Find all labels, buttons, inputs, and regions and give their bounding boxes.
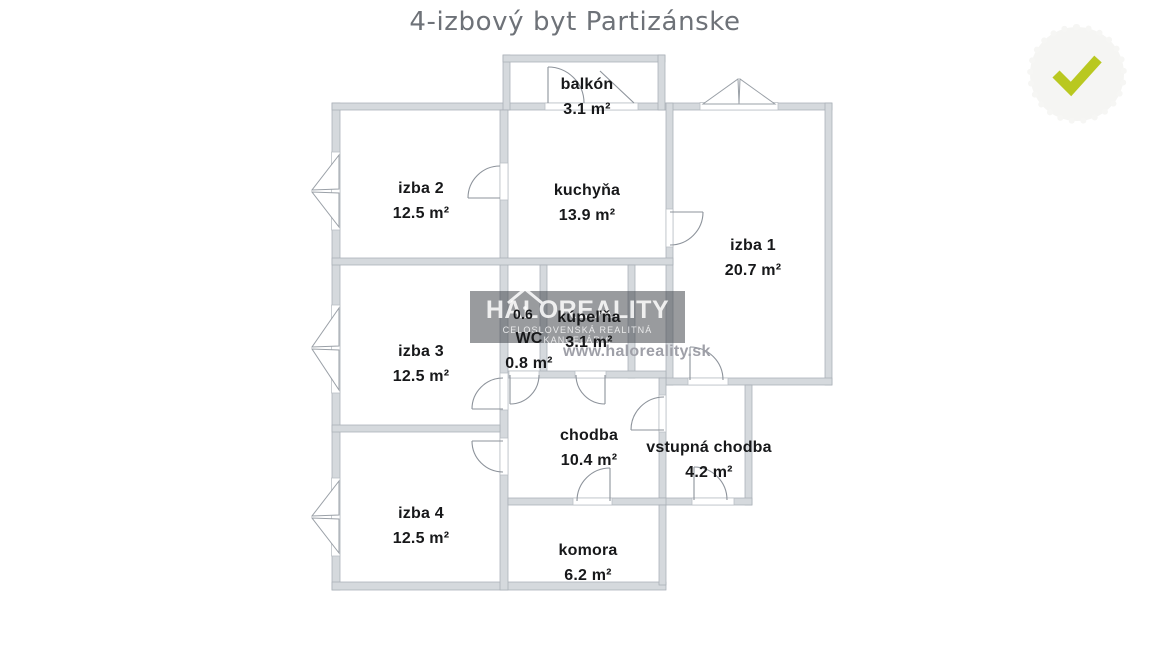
room-area: 3.1 m²: [561, 97, 614, 122]
room-name: chodba: [560, 423, 618, 448]
room-area: 3.1 m²: [557, 330, 621, 355]
room-label-balkon: balkón 3.1 m²: [561, 72, 614, 122]
room-area: 6.2 m²: [559, 563, 618, 588]
shaft-area-label: 0.6: [513, 302, 533, 327]
room-label-chodba: chodba 10.4 m²: [560, 423, 618, 473]
room-label-vstupna-chodba: vstupná chodba 4.2 m²: [646, 435, 771, 485]
room-label-komora: komora 6.2 m²: [559, 538, 618, 588]
room-name: balkón: [561, 72, 614, 97]
room-name: vstupná chodba: [646, 435, 771, 460]
room-area: 0.8 m²: [505, 351, 552, 376]
room-name: izba 1: [725, 233, 782, 258]
room-area: 12.5 m²: [393, 201, 450, 226]
room-label-kuchyna: kuchyňa 13.9 m²: [554, 178, 620, 228]
room-label-wc: WC 0.8 m²: [505, 326, 552, 376]
room-name: WC: [505, 326, 552, 351]
room-area: 12.5 m²: [393, 526, 450, 551]
room-label-izba-3: izba 3 12.5 m²: [393, 339, 450, 389]
room-name: komora: [559, 538, 618, 563]
room-name: izba 3: [393, 339, 450, 364]
room-name: kúpeľňa: [557, 305, 621, 330]
room-label-kupelna: kúpeľňa 3.1 m²: [557, 305, 621, 355]
room-area: 4.2 m²: [646, 460, 771, 485]
room-area: 10.4 m²: [560, 448, 618, 473]
room-area: 20.7 m²: [725, 258, 782, 283]
room-label-izba-4: izba 4 12.5 m²: [393, 501, 450, 551]
page: 4-izbový byt Partizánske: [0, 0, 1150, 646]
room-name: izba 2: [393, 176, 450, 201]
check-icon: [1030, 27, 1124, 121]
room-label-izba-1: izba 1 20.7 m²: [725, 233, 782, 283]
room-name: kuchyňa: [554, 178, 620, 203]
room-area: 13.9 m²: [554, 203, 620, 228]
verified-badge: [1030, 27, 1124, 121]
room-label-izba-2: izba 2 12.5 m²: [393, 176, 450, 226]
room-area: 12.5 m²: [393, 364, 450, 389]
room-name: izba 4: [393, 501, 450, 526]
